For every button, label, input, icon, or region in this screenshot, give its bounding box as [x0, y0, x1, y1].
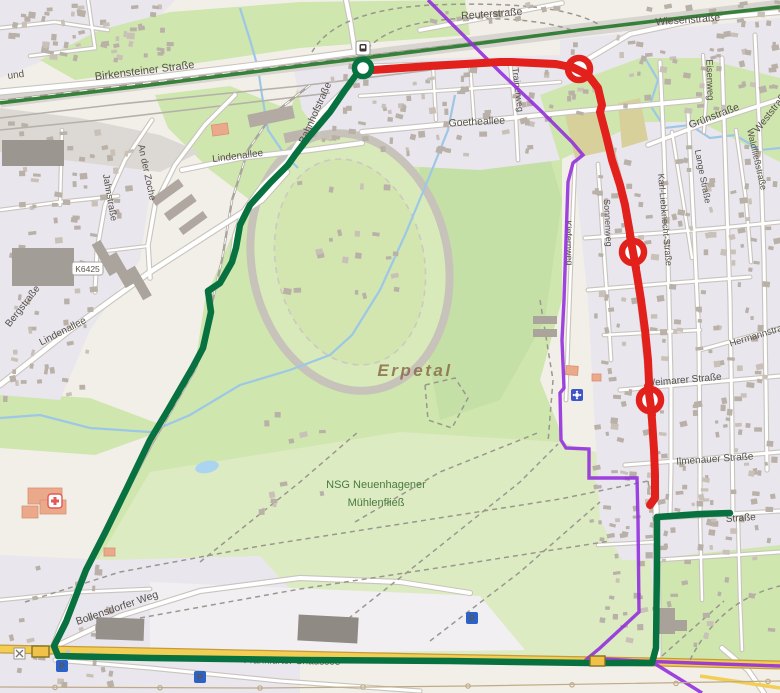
parking-icon-1: P [466, 612, 478, 624]
hospital-icon [48, 494, 62, 508]
area-label-nsg-line1: NSG Neuenhagener [326, 479, 426, 491]
area-label-erpetal: Erpetal [377, 361, 452, 380]
parking-icon-3: P [56, 660, 68, 672]
street-label-eisenweg: Eisenweg [703, 59, 715, 101]
parking-icon-2: P [194, 671, 206, 683]
road-ref-text: K6425 [75, 264, 100, 274]
svg-text:P: P [59, 662, 65, 672]
svg-text:P: P [197, 673, 203, 683]
area-label-nsg-line2: Mühlenfließ [348, 497, 405, 509]
map-canvas: und Birkensteiner Straße Reuterstraße Wi… [0, 0, 780, 693]
osm-map: und Birkensteiner Straße Reuterstraße Wi… [0, 0, 780, 693]
route-start-marker[interactable] [355, 60, 372, 77]
train-station-icon [356, 41, 370, 55]
amenity-icon [571, 389, 583, 401]
level-crossing-icon [14, 648, 25, 659]
hospital [22, 488, 66, 518]
road-ref-badge: K6425 [72, 262, 103, 275]
svg-text:P: P [469, 614, 475, 624]
street-label-partial: und [7, 69, 25, 82]
